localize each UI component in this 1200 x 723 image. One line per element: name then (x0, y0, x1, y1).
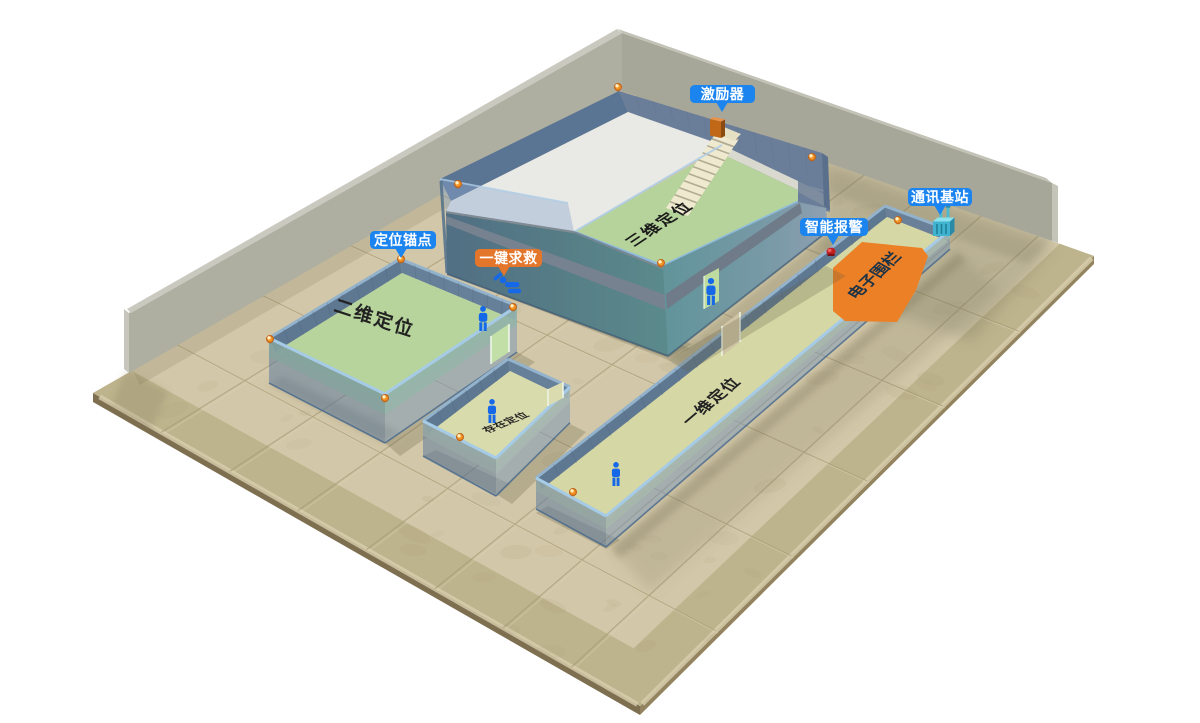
svg-text:激励器: 激励器 (701, 86, 745, 102)
svg-text:一键求救: 一键求救 (480, 250, 538, 266)
svg-text:定位锚点: 定位锚点 (374, 232, 432, 248)
svg-text:智能报警: 智能报警 (804, 219, 863, 235)
svg-text:通讯基站: 通讯基站 (911, 189, 969, 205)
